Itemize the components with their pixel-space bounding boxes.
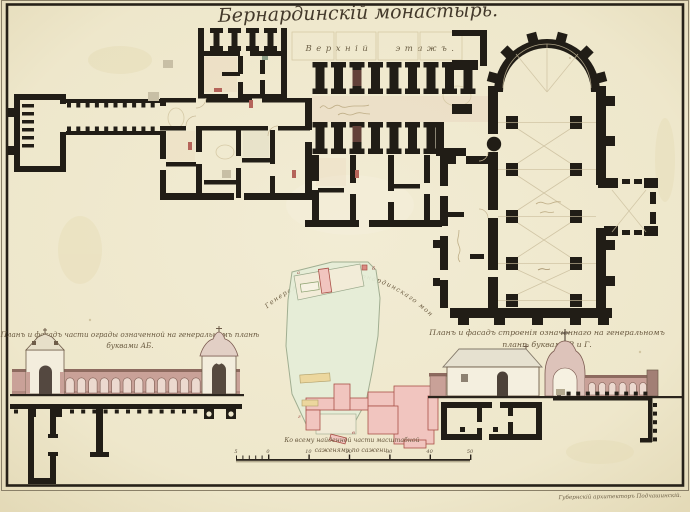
pillar: [424, 62, 439, 68]
gallery-pier: [114, 103, 118, 108]
scale-major-tick: [349, 455, 350, 461]
scale-label-30: 30: [386, 449, 393, 455]
scale-sub-tick: [236, 456, 237, 461]
gallery-pier: [114, 127, 118, 132]
pillar: [228, 28, 241, 33]
pillar: [408, 68, 417, 89]
pillar: [264, 28, 277, 33]
pillar: [331, 149, 346, 155]
pier-tick: [137, 410, 141, 414]
pier-tick: [92, 410, 96, 414]
pillar: [246, 46, 259, 51]
site-marker-v: в: [352, 430, 355, 436]
pillar: [371, 128, 380, 149]
pillar: [331, 89, 346, 95]
pillar: [461, 62, 476, 68]
pier-tick: [653, 403, 657, 407]
pillar: [350, 62, 365, 68]
pillar: [390, 128, 399, 149]
monastery-drawing: Бернардинскій монастырь. Верхній этажъ.: [0, 0, 690, 512]
pillar: [387, 62, 402, 68]
pillar: [334, 68, 343, 89]
pillar: [405, 89, 420, 95]
pillar: [371, 68, 380, 89]
arcade-arch: [100, 378, 108, 393]
left-elevation-caption-2: буквами АБ.: [106, 341, 153, 350]
scale-major-tick: [430, 455, 431, 461]
pier-tick: [115, 410, 119, 414]
scale-sub-tick: [262, 456, 263, 461]
pier-tick: [653, 420, 657, 424]
scale-sub-tick: [249, 456, 250, 461]
pillar: [405, 149, 420, 155]
scale-major-tick: [268, 455, 269, 461]
pillar: [316, 128, 325, 149]
scale-major-tick: [308, 455, 309, 461]
pillar: [368, 62, 383, 68]
pillar: [268, 33, 274, 46]
pier-tick: [193, 410, 197, 414]
gallery-pier: [86, 127, 90, 132]
pillar: [368, 122, 383, 128]
pillar: [442, 89, 457, 95]
pier-tick: [634, 392, 638, 396]
pillar: [313, 89, 328, 95]
pillar: [313, 149, 328, 155]
scale-caption-2: саженями по сажени.: [315, 447, 390, 454]
pillar: [387, 122, 402, 128]
gallery-pier: [141, 127, 145, 132]
pillar: [214, 33, 220, 46]
gallery-pier: [95, 103, 99, 108]
gallery-pier: [86, 103, 90, 108]
pillar: [405, 122, 420, 128]
pillar: [246, 28, 259, 33]
scale-caption-1: Ко всему найденной части масштабной: [283, 437, 419, 444]
pillar: [232, 33, 238, 46]
arcade-arch: [77, 378, 85, 393]
pier-tick: [126, 410, 130, 414]
scale-label-50: 50: [467, 449, 474, 455]
arcade-arch: [66, 378, 74, 393]
pillar: [210, 46, 223, 51]
pillar: [445, 68, 454, 89]
gallery-pier: [76, 103, 80, 108]
pier-tick: [595, 392, 599, 396]
gallery-pier: [104, 127, 108, 132]
drawing-sheet: Бернардинскій монастырь. Верхній этажъ.: [0, 0, 690, 512]
pillar: [424, 89, 439, 95]
right-building-elevation: [443, 344, 542, 396]
scale-label-20: 20: [345, 449, 353, 455]
stair-step: [22, 136, 34, 140]
pillar: [405, 62, 420, 68]
stair-step: [22, 144, 34, 148]
stair-step: [22, 104, 34, 108]
arcade-arch: [123, 378, 131, 393]
gallery-pier: [104, 103, 108, 108]
gallery-pier: [123, 127, 127, 132]
paper-background: [0, 0, 690, 512]
scale-sub-tick: [242, 456, 243, 461]
pillar: [313, 122, 328, 128]
scale-major-tick: [389, 455, 390, 461]
site-marker-a: а: [297, 270, 300, 276]
pillar: [316, 68, 325, 89]
arcade-arch: [157, 378, 165, 393]
scale-major-tick: [470, 455, 471, 461]
pier-tick: [70, 410, 74, 414]
pillar: [387, 149, 402, 155]
gallery-pier: [123, 103, 127, 108]
pier-tick: [643, 392, 647, 396]
pier-tick: [182, 410, 186, 414]
pillar: [464, 68, 473, 89]
pillar: [368, 89, 383, 95]
pillar: [350, 89, 365, 95]
gallery-pier: [151, 103, 155, 108]
pillar: [264, 46, 277, 51]
stair-step: [22, 128, 34, 132]
pillar: [228, 46, 241, 51]
pillar: [387, 89, 402, 95]
arcade-arch: [180, 378, 188, 393]
pier-tick: [653, 412, 657, 416]
gallery-pier: [141, 103, 145, 108]
gallery-pier: [132, 127, 136, 132]
pier-tick: [81, 410, 85, 414]
scale-label-40: 40: [425, 449, 433, 455]
pillar: [331, 62, 346, 68]
pillar: [331, 122, 346, 128]
pillar: [427, 68, 436, 89]
scale-sub-tick: [255, 456, 256, 461]
pillar: [390, 68, 399, 89]
arcade-arch: [146, 378, 154, 393]
pillar: [427, 128, 436, 149]
pier-tick: [624, 392, 628, 396]
stair-step: [22, 112, 34, 116]
pillar: [424, 122, 439, 128]
pillar: [334, 128, 343, 149]
pier-tick: [576, 392, 580, 396]
right-elevation-caption-2: планѣ буквами В и Г.: [502, 340, 592, 349]
pier-tick: [653, 429, 657, 433]
arcade-arch: [135, 378, 143, 393]
pillar: [408, 128, 417, 149]
pillar: [368, 149, 383, 155]
scale-label-5: 5: [234, 449, 237, 455]
stair-step: [22, 120, 34, 124]
pier-tick: [605, 392, 609, 396]
pillar: [350, 149, 365, 155]
pier-tick: [14, 410, 18, 414]
arcade-arch: [112, 378, 120, 393]
gallery-pier: [151, 127, 155, 132]
gallery-pier: [67, 127, 71, 132]
pier-tick: [104, 410, 108, 414]
arcade-arch: [192, 378, 200, 393]
pillar: [210, 28, 223, 33]
pier-tick: [586, 392, 590, 396]
gallery-pier: [76, 127, 80, 132]
arcade-arch: [169, 378, 177, 393]
pillar: [424, 149, 439, 155]
arcade-arch: [89, 378, 97, 393]
pillar: [313, 62, 328, 68]
arcade-arch: [599, 383, 606, 395]
pier-tick: [171, 410, 175, 414]
gallery-pier: [132, 103, 136, 108]
pier-tick: [160, 410, 164, 414]
right-elevation-caption-1: Планъ и фасадъ строенія означеннаго на г…: [428, 328, 665, 337]
pier-tick: [615, 392, 619, 396]
gallery-pier: [95, 127, 99, 132]
corridor-colonnade-north: [313, 62, 476, 94]
pillar: [250, 33, 256, 46]
gallery-pier: [67, 103, 71, 108]
pier-tick: [567, 392, 571, 396]
pier-tick: [653, 437, 657, 441]
scale-label-10: 10: [305, 449, 312, 455]
floor-label: Верхній этажъ.: [305, 44, 459, 54]
pillar: [442, 62, 457, 68]
pillar: [461, 89, 476, 95]
pier-tick: [148, 410, 152, 414]
